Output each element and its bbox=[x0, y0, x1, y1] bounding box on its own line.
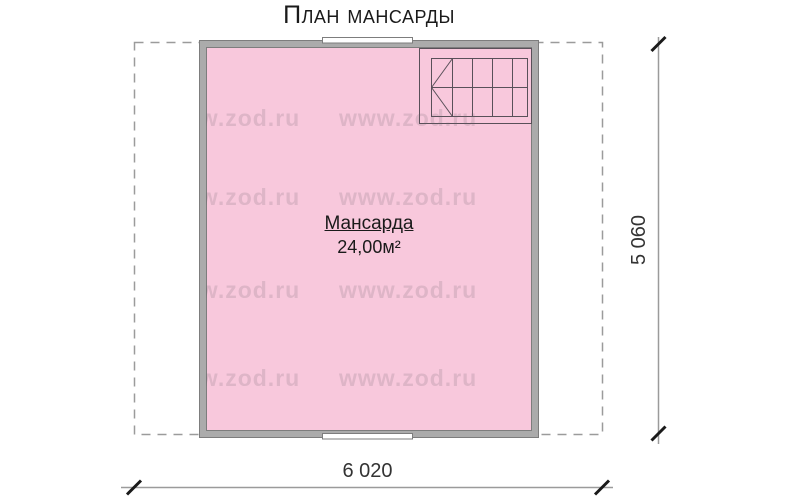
room-area-label: 24,00м² bbox=[289, 237, 449, 258]
floor-plan-canvas: План мансарды bbox=[0, 0, 795, 496]
window-bottom bbox=[323, 434, 413, 440]
window-top bbox=[323, 38, 413, 44]
dimension-line-vertical bbox=[652, 37, 666, 444]
room-name-label: Мансарда bbox=[289, 213, 449, 235]
dimension-width-label: 6 020 bbox=[307, 460, 428, 483]
dimension-height-label: 5 060 bbox=[628, 180, 650, 300]
